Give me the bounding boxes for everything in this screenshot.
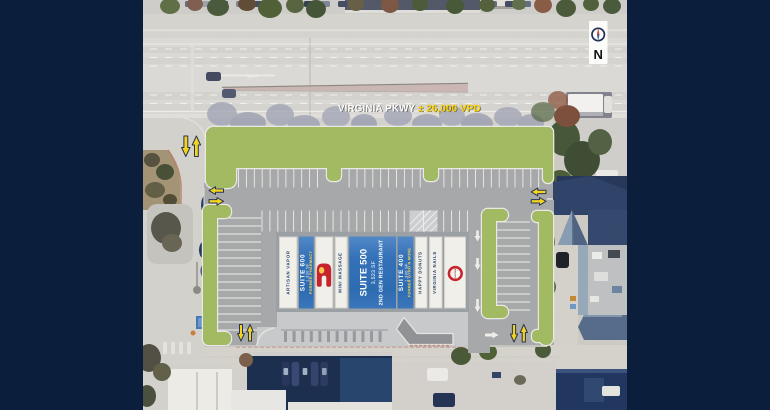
svg-text:VIRGINIA PKWY ± 26,000 VPD: VIRGINIA PKWY ± 26,000 VPD — [338, 104, 481, 115]
svg-text:MINI MASSAGE: MINI MASSAGE — [338, 252, 343, 292]
svg-text:VIRGINIA NAILS: VIRGINIA NAILS — [432, 251, 437, 294]
svg-text:CANTEEN: CANTEEN — [454, 268, 457, 278]
svg-text:ARTISAN VAPOR: ARTISAN VAPOR — [286, 250, 291, 295]
svg-text:SUITE 500: SUITE 500 — [357, 249, 368, 297]
svg-text:3,523 SF: 3,523 SF — [371, 261, 377, 284]
svg-text:N: N — [594, 47, 603, 62]
svg-text:FORMER PHARMACY: FORMER PHARMACY — [309, 251, 313, 294]
svg-text:HAPPY DONUTS: HAPPY DONUTS — [418, 251, 423, 293]
svg-text:FORMER GYRO N MORE: FORMER GYRO N MORE — [408, 248, 412, 298]
svg-text:2ND GEN RESTAURANT: 2ND GEN RESTAURANT — [379, 239, 385, 305]
